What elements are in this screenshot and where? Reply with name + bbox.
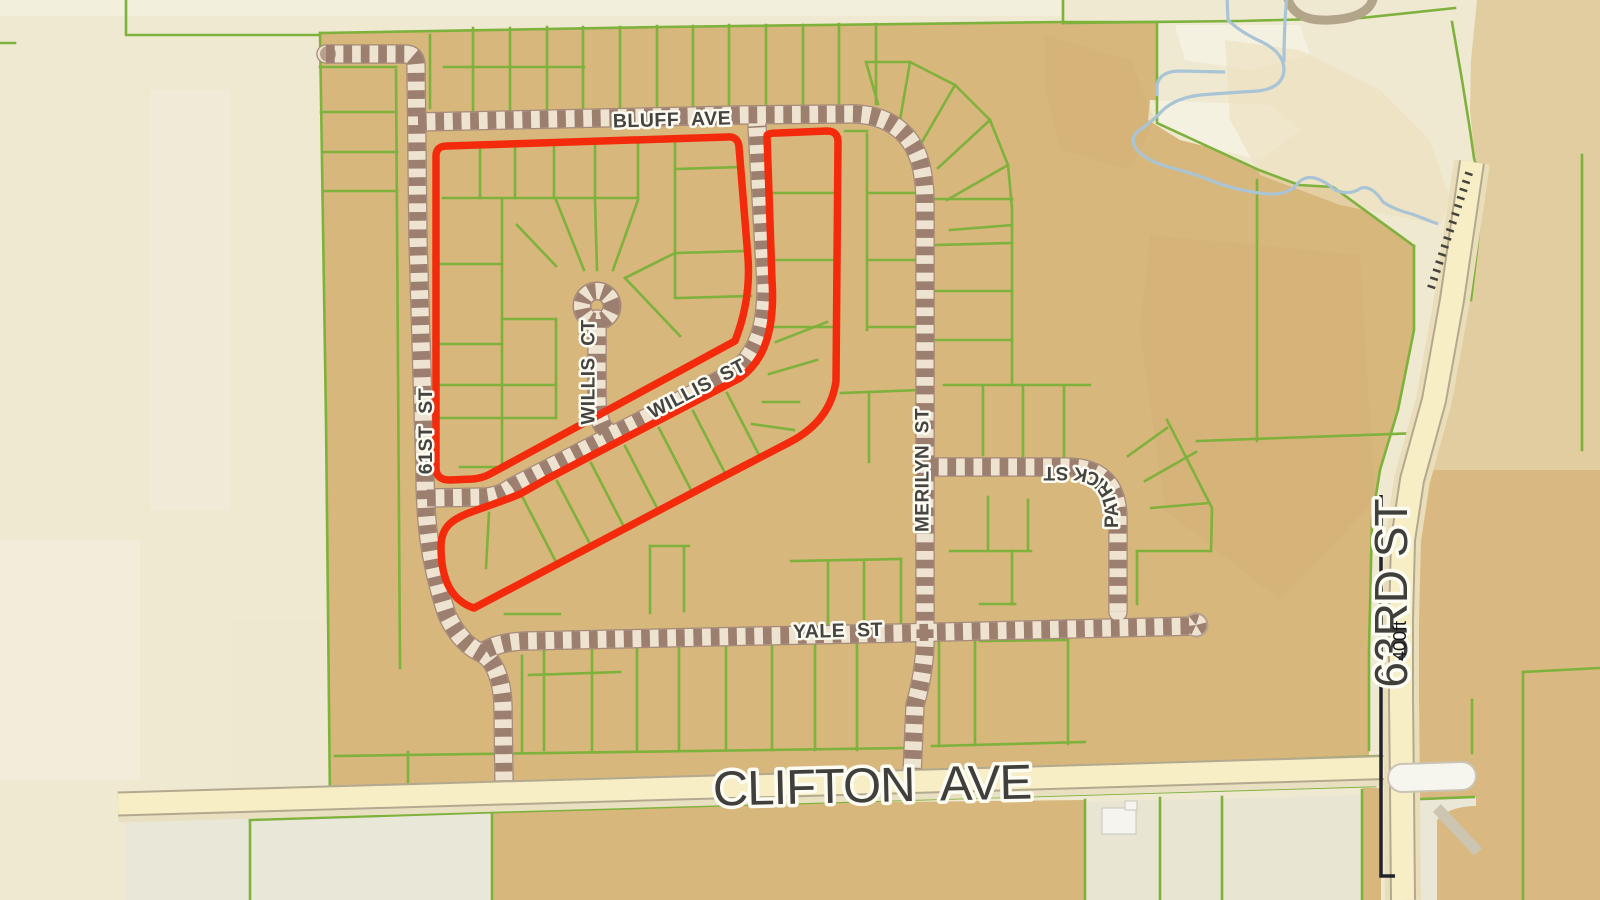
svg-text:BLUFF AVE: BLUFF AVE [613,107,732,132]
svg-text:61ST ST: 61ST ST [415,388,437,474]
svg-text:WILLIS CT: WILLIS CT [579,319,600,424]
svg-text:MERILYN ST: MERILYN ST [913,408,934,532]
svg-text:400ft: 400ft [1390,621,1410,661]
svg-text:YALE ST: YALE ST [793,619,884,643]
svg-text:CLIFTON AVE: CLIFTON AVE [712,755,1032,816]
